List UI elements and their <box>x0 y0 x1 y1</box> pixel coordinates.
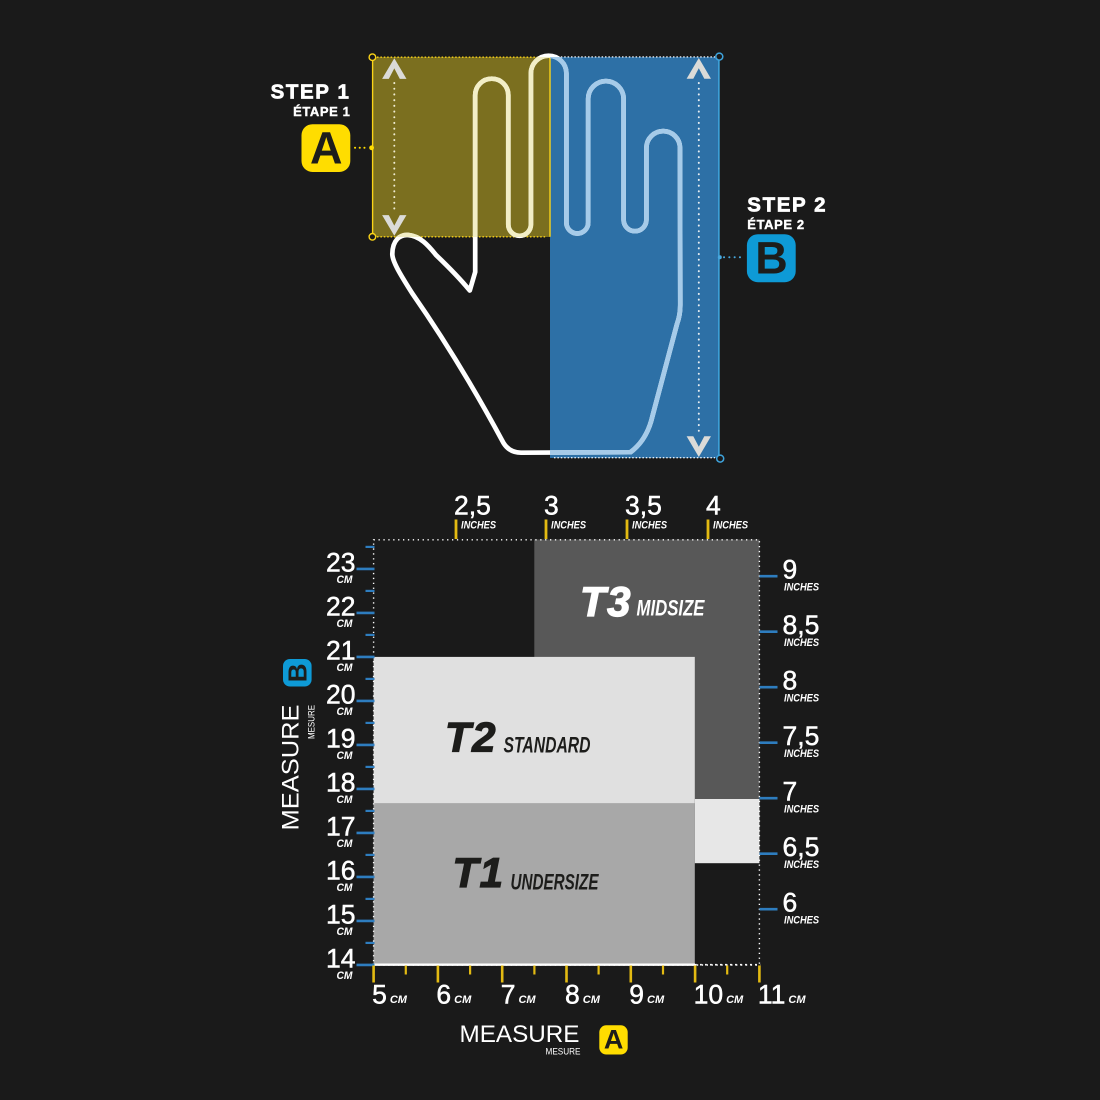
svg-text:CM: CM <box>337 926 354 938</box>
svg-text:ÉTAPE 1: ÉTAPE 1 <box>293 104 350 119</box>
svg-text:MEASURE: MEASURE <box>460 1021 580 1048</box>
svg-text:7: 7 <box>783 777 798 807</box>
svg-text:9: 9 <box>783 555 798 585</box>
svg-text:18: 18 <box>326 767 355 797</box>
svg-text:INCHES: INCHES <box>551 520 587 532</box>
svg-text:MESURE: MESURE <box>307 705 318 739</box>
svg-text:14: 14 <box>326 943 355 973</box>
svg-text:MEASURE: MEASURE <box>278 705 305 831</box>
svg-text:20: 20 <box>326 679 355 709</box>
svg-text:UNDERSIZE: UNDERSIZE <box>511 870 600 895</box>
svg-text:21: 21 <box>326 635 355 665</box>
svg-text:6: 6 <box>783 888 798 918</box>
svg-text:B: B <box>283 663 313 682</box>
svg-text:STANDARD: STANDARD <box>504 733 591 758</box>
svg-text:CM: CM <box>337 882 354 894</box>
svg-text:CM: CM <box>337 750 354 762</box>
svg-text:CM: CM <box>337 706 354 718</box>
svg-text:CM: CM <box>337 970 354 982</box>
svg-text:INCHES: INCHES <box>632 520 668 532</box>
svg-text:CM: CM <box>337 618 354 630</box>
svg-text:3,5: 3,5 <box>625 491 662 521</box>
svg-text:CM: CM <box>337 794 354 806</box>
svg-text:INCHES: INCHES <box>784 748 820 760</box>
svg-text:INCHES: INCHES <box>784 859 820 871</box>
svg-text:CM: CM <box>337 574 354 586</box>
svg-text:16: 16 <box>326 855 355 885</box>
svg-text:INCHES: INCHES <box>461 520 497 532</box>
svg-text:4: 4 <box>706 491 721 521</box>
svg-text:STEP 2: STEP 2 <box>747 193 827 216</box>
svg-text:6,5: 6,5 <box>783 832 820 862</box>
svg-text:INCHES: INCHES <box>784 804 820 816</box>
svg-text:T1: T1 <box>453 849 505 896</box>
svg-text:3: 3 <box>544 491 559 521</box>
svg-text:T2: T2 <box>445 714 497 761</box>
svg-text:17: 17 <box>326 811 355 841</box>
svg-text:INCHES: INCHES <box>784 915 820 927</box>
svg-text:A: A <box>310 123 343 174</box>
svg-text:ÉTAPE 2: ÉTAPE 2 <box>747 217 804 232</box>
svg-text:B: B <box>755 233 788 284</box>
svg-text:CM: CM <box>337 838 354 850</box>
svg-text:22: 22 <box>326 591 355 621</box>
svg-text:INCHES: INCHES <box>713 520 749 532</box>
svg-text:23: 23 <box>326 547 355 577</box>
svg-text:INCHES: INCHES <box>784 693 820 705</box>
svg-text:8: 8 <box>783 666 798 696</box>
svg-text:2,5: 2,5 <box>454 491 491 521</box>
svg-text:19: 19 <box>326 723 355 753</box>
svg-text:7,5: 7,5 <box>783 721 820 751</box>
svg-text:MIDSIZE: MIDSIZE <box>637 596 706 621</box>
svg-text:T3: T3 <box>580 578 632 625</box>
svg-text:A: A <box>604 1024 624 1054</box>
svg-text:STEP 1: STEP 1 <box>271 80 351 103</box>
svg-text:INCHES: INCHES <box>784 637 820 649</box>
svg-text:8,5: 8,5 <box>783 610 820 640</box>
svg-text:INCHES: INCHES <box>784 582 820 594</box>
svg-text:15: 15 <box>326 899 355 929</box>
svg-text:CM: CM <box>337 662 354 674</box>
svg-text:MESURE: MESURE <box>546 1047 581 1058</box>
